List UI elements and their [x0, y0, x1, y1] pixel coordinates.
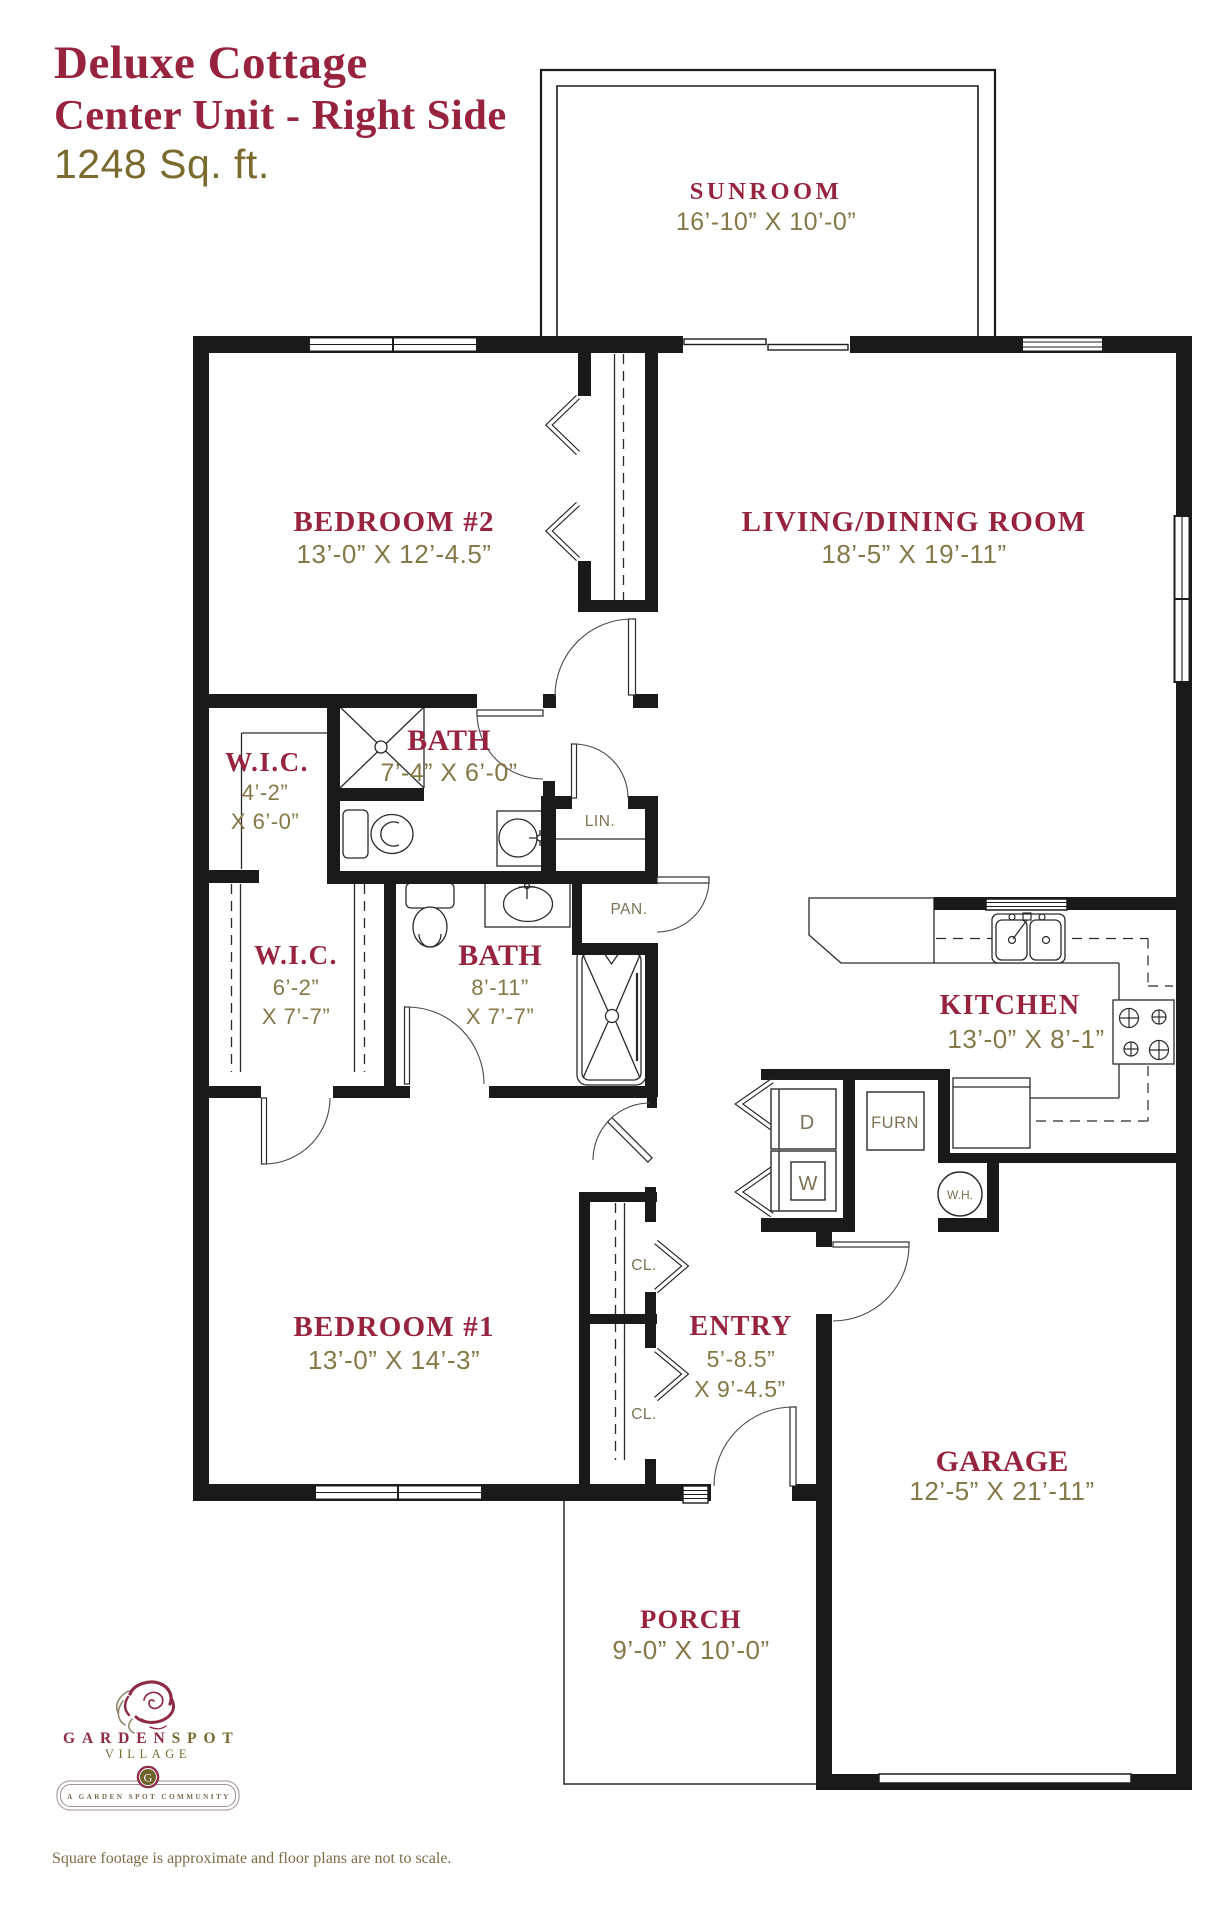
svg-text:GARDENSPOT: GARDENSPOT — [63, 1730, 240, 1747]
svg-text:13’-0” X 14’-3”: 13’-0” X 14’-3” — [308, 1345, 480, 1375]
svg-text:FURN: FURN — [871, 1114, 919, 1132]
svg-text:13’-0” X 12’-4.5”: 13’-0” X 12’-4.5” — [297, 539, 492, 569]
svg-text:BATH: BATH — [458, 939, 542, 972]
svg-text:CL.: CL. — [631, 1406, 657, 1423]
svg-text:ENTRY: ENTRY — [689, 1311, 792, 1342]
svg-text:BEDROOM #1: BEDROOM #1 — [293, 1311, 494, 1343]
svg-text:PAN.: PAN. — [610, 901, 647, 918]
svg-text:W: W — [799, 1173, 818, 1195]
svg-text:16’-10” X 10’-0”: 16’-10” X 10’-0” — [676, 208, 856, 236]
svg-text:1248 Sq. ft.: 1248 Sq. ft. — [54, 141, 270, 187]
svg-text:A GARDEN SPOT COMMUNITY: A GARDEN SPOT COMMUNITY — [67, 1793, 231, 1801]
svg-text:BATH: BATH — [407, 724, 491, 757]
svg-text:LIN.: LIN. — [585, 813, 615, 830]
svg-text:SUNROOM: SUNROOM — [690, 178, 842, 205]
svg-text:X 9’-4.5”: X 9’-4.5” — [694, 1376, 785, 1402]
svg-text:W.I.C.: W.I.C. — [225, 747, 309, 777]
svg-text:13’-0” X 8’-1”: 13’-0” X 8’-1” — [947, 1024, 1104, 1054]
svg-text:G: G — [144, 1771, 153, 1785]
svg-text:8’-11”: 8’-11” — [471, 975, 529, 1000]
svg-text:BEDROOM #2: BEDROOM #2 — [293, 506, 494, 538]
svg-text:7’-4” X 6’-0”: 7’-4” X 6’-0” — [380, 759, 517, 787]
svg-text:6’-2”: 6’-2” — [273, 975, 320, 1000]
svg-text:VILLAGE: VILLAGE — [105, 1747, 191, 1761]
svg-text:X 7’-7”: X 7’-7” — [466, 1004, 534, 1029]
svg-text:18’-5” X 19’-11”: 18’-5” X 19’-11” — [821, 539, 1006, 569]
svg-text:X 6’-0”: X 6’-0” — [231, 809, 299, 834]
svg-text:CL.: CL. — [631, 1257, 657, 1274]
svg-text:Center Unit - Right Side: Center Unit - Right Side — [54, 92, 507, 139]
svg-text:Square footage is approximate: Square footage is approximate and floor … — [52, 1850, 451, 1867]
svg-text:D: D — [800, 1112, 814, 1134]
svg-text:Deluxe Cottage: Deluxe Cottage — [54, 37, 368, 89]
svg-text:KITCHEN: KITCHEN — [940, 990, 1081, 1021]
svg-text:9’-0” X 10’-0”: 9’-0” X 10’-0” — [612, 1635, 769, 1665]
svg-text:W.I.C.: W.I.C. — [254, 940, 338, 970]
svg-text:PORCH: PORCH — [640, 1604, 742, 1634]
svg-text:X 7’-7”: X 7’-7” — [262, 1004, 330, 1029]
svg-text:12’-5” X 21’-11”: 12’-5” X 21’-11” — [909, 1476, 1094, 1506]
svg-text:5’-8.5”: 5’-8.5” — [707, 1346, 776, 1372]
svg-text:LIVING/DINING ROOM: LIVING/DINING ROOM — [742, 506, 1087, 538]
svg-text:4’-2”: 4’-2” — [242, 780, 289, 805]
svg-text:GARAGE: GARAGE — [936, 1445, 1069, 1478]
svg-text:W.H.: W.H. — [947, 1188, 973, 1202]
